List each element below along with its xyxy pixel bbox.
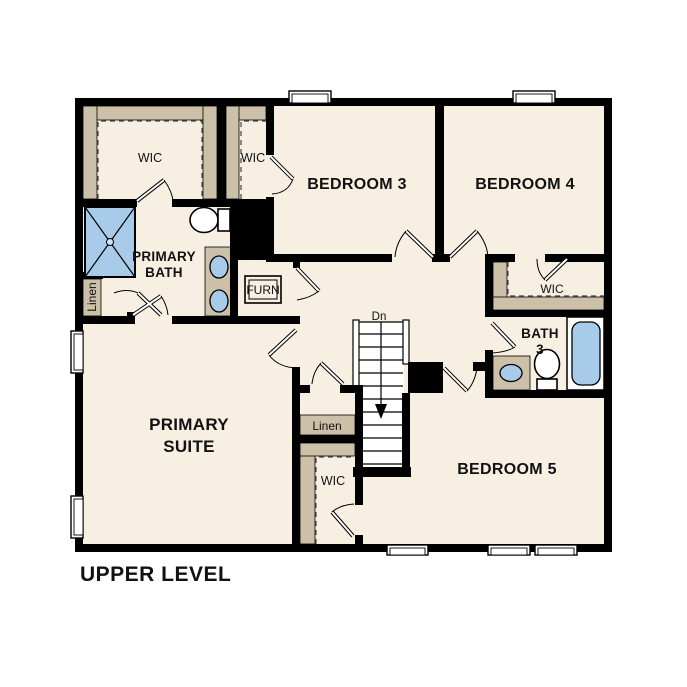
label-primary-suite-line2: SUITE (163, 437, 215, 456)
bath3-sink-icon (500, 365, 522, 382)
floor-plan-page: WIC WIC BEDROOM 3 BEDROOM 4 PRIMARY BATH… (0, 0, 687, 687)
window-top-bedroom4 (513, 91, 555, 103)
stairs-left-rail (353, 320, 359, 386)
stairs-right-rail (403, 320, 409, 364)
label-wic-top-mid: WIC (241, 151, 265, 165)
window-top-bedroom3 (289, 91, 331, 103)
label-linen-left: Linen (85, 282, 99, 311)
label-bedroom-4: BEDROOM 4 (475, 176, 575, 193)
label-furnace: FURN (246, 283, 279, 297)
label-bedroom-5: BEDROOM 5 (457, 461, 557, 478)
label-wic-right: WIC (540, 282, 564, 296)
label-bath3-line1: BATH (521, 326, 559, 341)
window-bottom-2 (488, 545, 530, 555)
label-primary-bath-line1: PRIMARY (132, 249, 196, 264)
label-stairs-down: Dn (372, 311, 387, 323)
chase-block-right (408, 362, 443, 393)
window-bottom-1 (387, 545, 428, 555)
primary-toilet-icon (190, 208, 230, 233)
shower-icon (85, 207, 135, 277)
label-primary-bath-line2: BATH (145, 265, 183, 280)
window-bottom-3 (535, 545, 577, 555)
label-linen-center: Linen (312, 419, 341, 433)
chase-block-left (230, 204, 274, 260)
label-primary-suite-line1: PRIMARY (149, 415, 229, 434)
window-left-upper (71, 331, 83, 373)
label-bath3-line2: 3 (536, 342, 544, 357)
bathtub-icon (567, 317, 604, 390)
window-left-lower (71, 496, 83, 538)
label-wic-bottom: WIC (321, 474, 345, 488)
label-bedroom-3: BEDROOM 3 (307, 176, 407, 193)
floor-plan-drawing: WIC WIC BEDROOM 3 BEDROOM 4 PRIMARY BATH… (0, 0, 687, 687)
plan-title: UPPER LEVEL (80, 563, 231, 586)
label-wic-top-left: WIC (138, 151, 162, 165)
